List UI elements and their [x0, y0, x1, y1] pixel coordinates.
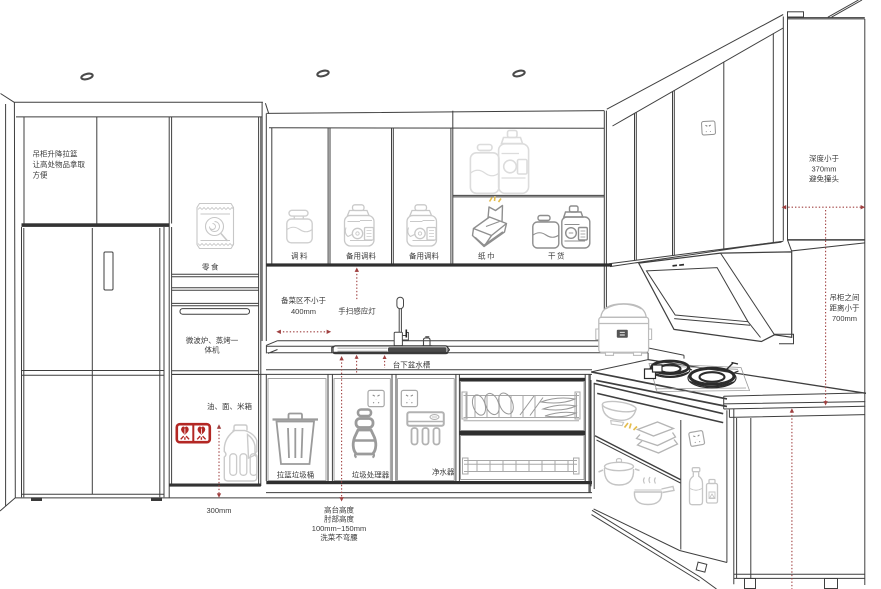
svg-text:洗菜不弯腰: 洗菜不弯腰 [320, 532, 358, 542]
svg-text:备用调料: 备用调料 [409, 250, 439, 260]
svg-text:体机: 体机 [205, 345, 220, 355]
svg-text:方便: 方便 [33, 170, 48, 180]
svg-text:400mm: 400mm [291, 307, 316, 316]
svg-text:高台高度: 高台高度 [324, 504, 354, 514]
svg-text:深度小于: 深度小于 [809, 153, 839, 163]
svg-text:肘部高度: 肘部高度 [324, 514, 354, 524]
svg-text:300mm: 300mm [206, 506, 231, 515]
svg-text:垃圾处理器: 垃圾处理器 [352, 470, 390, 480]
svg-text:距离小于: 距离小于 [830, 303, 860, 313]
svg-text:微波炉、蒸烤一: 微波炉、蒸烤一 [186, 335, 239, 345]
svg-text:干货: 干货 [548, 250, 566, 260]
svg-text:吊柜之间: 吊柜之间 [830, 292, 860, 302]
svg-text:零食: 零食 [202, 262, 220, 272]
svg-text:吊柜升降拉篮: 吊柜升降拉篮 [33, 149, 78, 159]
svg-text:370mm: 370mm [811, 164, 836, 173]
svg-text:手扫感应灯: 手扫感应灯 [338, 306, 376, 316]
svg-text:避免撞头: 避免撞头 [809, 174, 839, 184]
svg-text:备菜区不小于: 备菜区不小于 [281, 295, 326, 305]
svg-text:台下盆水槽: 台下盆水槽 [393, 359, 431, 369]
svg-text:油、面、米箱: 油、面、米箱 [207, 401, 252, 411]
svg-text:拉篮垃圾桶: 拉篮垃圾桶 [277, 470, 315, 480]
svg-text:备用调料: 备用调料 [346, 250, 376, 260]
svg-text:700mm: 700mm [832, 314, 857, 323]
svg-text:纸巾: 纸巾 [478, 250, 496, 260]
svg-text:调料: 调料 [291, 250, 309, 260]
svg-text:让高处物品拿取: 让高处物品拿取 [33, 159, 86, 169]
svg-text:100mm~150mm: 100mm~150mm [312, 524, 366, 533]
svg-text:净水器: 净水器 [432, 467, 455, 477]
